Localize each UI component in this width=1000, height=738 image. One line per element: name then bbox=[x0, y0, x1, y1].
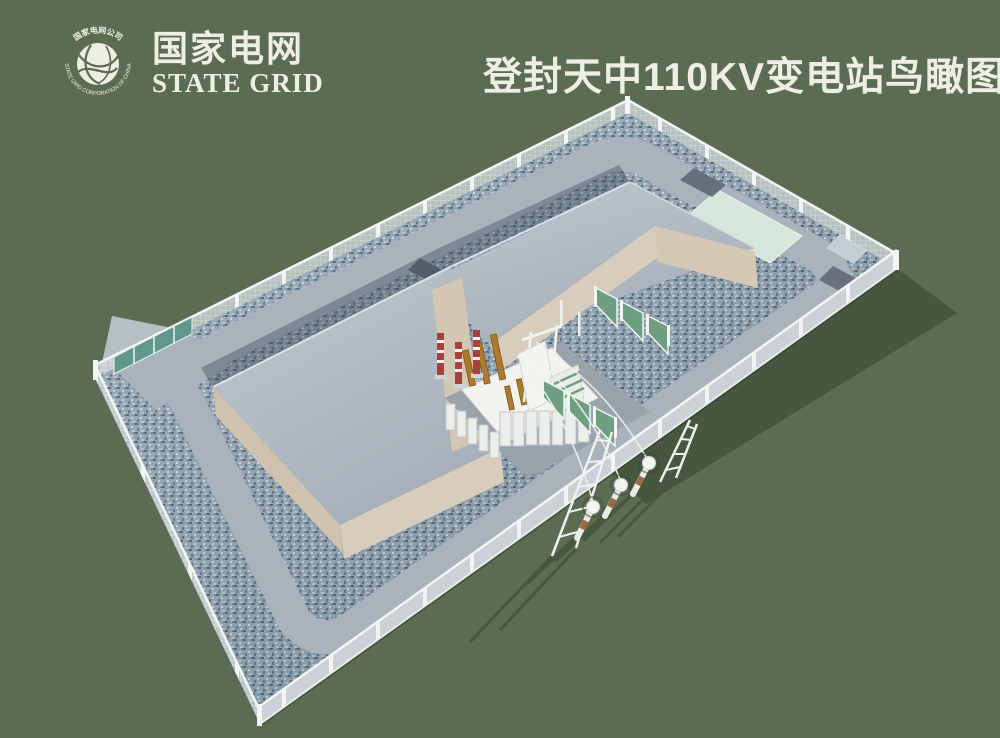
slide-canvas: 国家电网公司 STATE GRID CORPORATION OF CHINA 国… bbox=[0, 0, 1000, 738]
substation-3d-rendering bbox=[0, 0, 1000, 738]
